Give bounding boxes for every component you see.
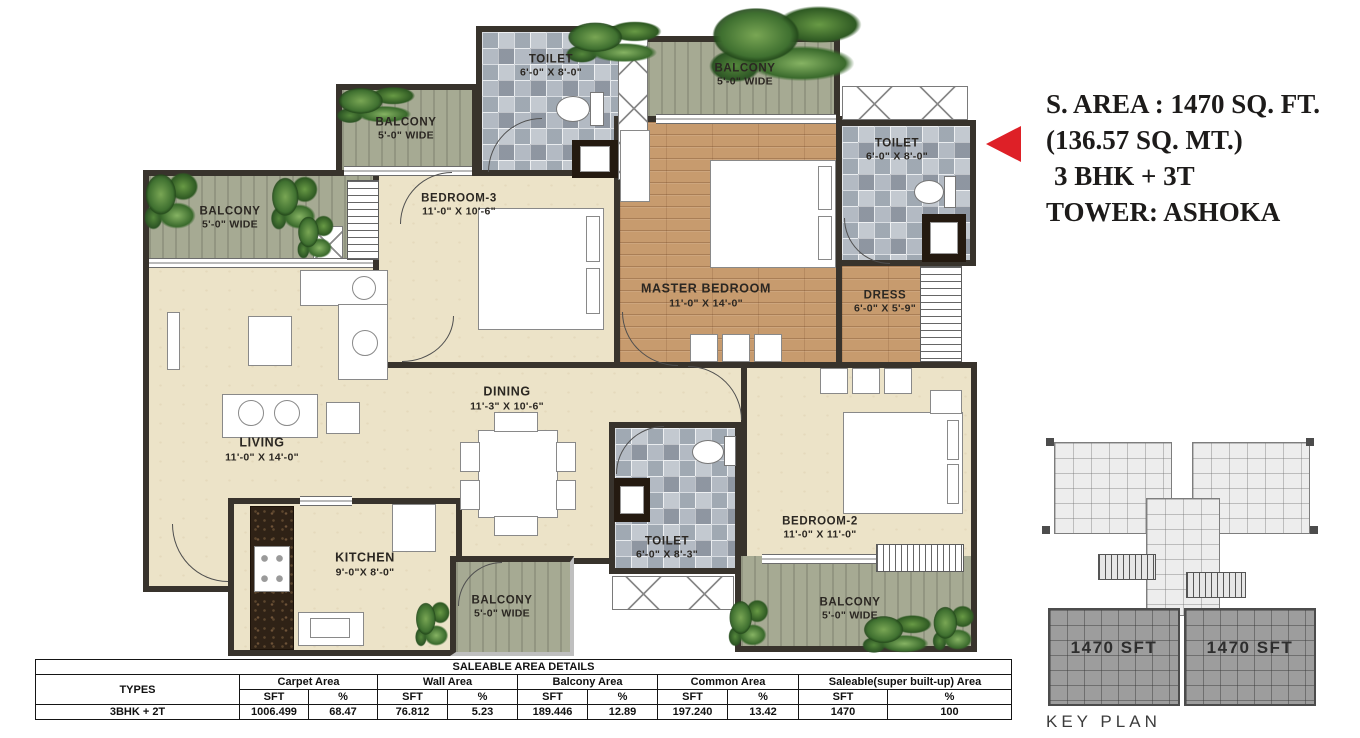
group-header-balcony: Balcony Area (518, 675, 658, 690)
room-dims: 11'-0" X 14'-0" (641, 297, 771, 310)
sub-header-pct: % (888, 690, 1012, 705)
saleable-area-table: SALEABLE AREA DETAILS TYPES Carpet Area … (35, 659, 1012, 720)
cabinet (722, 334, 750, 362)
annotation-unit-type: 3 BHK + 3T (1046, 158, 1320, 194)
cabinet (820, 368, 848, 394)
dining-chair (556, 442, 576, 472)
unit-annotation: S. AREA : 1470 SQ. FT. (136.57 SQ. MT.) … (1046, 86, 1320, 230)
room-dims: 9'-0"X 8'-0" (335, 566, 395, 579)
cabinet (690, 334, 718, 362)
room-name: LIVING (225, 436, 299, 452)
wc-icon (692, 440, 724, 464)
wc-icon (724, 436, 736, 466)
label-bedroom2: BEDROOM-2 11'-0" X 11'-0" (782, 514, 858, 542)
room-dims: 6'-0" X 5'-9" (854, 303, 916, 316)
wc-icon (590, 92, 604, 126)
wc-icon (556, 96, 590, 122)
group-header-wall: Wall Area (378, 675, 518, 690)
value-cell: 5.23 (448, 705, 518, 720)
sub-header-sft: SFT (658, 690, 728, 705)
window-balcony-left (149, 258, 373, 268)
tv-table (248, 316, 292, 366)
sofa-cushion (352, 330, 378, 356)
keyplan-unit-left-highlighted: 1470 SFT (1048, 608, 1180, 706)
room-name: BEDROOM-3 (421, 191, 497, 205)
washbasin-icon (580, 146, 610, 172)
keyplan-column (1042, 526, 1050, 534)
tv-panel (167, 312, 180, 370)
group-header-saleable: Saleable(super built-up) Area (799, 675, 1012, 690)
side-table (326, 402, 360, 434)
label-balcony-kitchen: BALCONY 5'-0" WIDE (471, 593, 532, 621)
room-name: BALCONY (819, 595, 880, 609)
wc-icon (914, 180, 944, 204)
keyplan-column (1306, 438, 1314, 446)
wc-icon (944, 176, 956, 208)
sub-header-sft: SFT (378, 690, 448, 705)
room-dims: 11'-0" X 14'-0" (225, 451, 299, 464)
washbasin-icon (620, 486, 644, 514)
room-dims: 5'-0" WIDE (375, 130, 436, 143)
room-name: MASTER BEDROOM (641, 282, 771, 298)
room-dims: 11'-0" X 11'-0" (782, 529, 858, 542)
pointer-arrow-icon (986, 126, 1021, 162)
plant (930, 602, 978, 654)
annotation-area: S. AREA : 1470 SQ. FT. (1046, 86, 1320, 122)
keyplan-column (1310, 526, 1318, 534)
room-dims: 5'-0" WIDE (714, 76, 775, 89)
keyplan-stair (1098, 554, 1156, 580)
label-master-bedroom: MASTER BEDROOM 11'-0" X 14'-0" (641, 282, 771, 311)
room-dims: 11'-3" X 10'-6" (470, 400, 544, 413)
window-bedroom2-balcony (762, 554, 878, 564)
window-kitchen (300, 496, 352, 506)
value-cell: 76.812 (378, 705, 448, 720)
key-plan: 1470 SFT 1470 SFT KEY PLAN (1042, 438, 1332, 734)
keyplan-unit-left-label: 1470 SFT (1050, 638, 1178, 658)
keyplan-column (1046, 438, 1054, 446)
table-group-header-row: TYPES Carpet Area Wall Area Balcony Area… (36, 675, 1012, 690)
pillow (586, 268, 600, 314)
refrigerator (392, 504, 436, 552)
label-balcony-upper-left: BALCONY 5'-0" WIDE (375, 115, 436, 143)
keyplan-unit-right-label: 1470 SFT (1186, 638, 1314, 658)
label-toilet-top-right: TOILET 6'-0" X 8'-0" (866, 136, 928, 164)
cabinet (754, 334, 782, 362)
pillow (818, 166, 832, 210)
room-name: BALCONY (375, 115, 436, 129)
stove (254, 546, 290, 592)
table-title-row: SALEABLE AREA DETAILS (36, 660, 1012, 675)
dining-chair (460, 442, 480, 472)
label-balcony-bottom: BALCONY 5'-0" WIDE (819, 595, 880, 623)
value-cell: 13.42 (728, 705, 799, 720)
label-balcony-left: BALCONY 5'-0" WIDE (199, 204, 260, 232)
keyplan-stair (1186, 572, 1246, 598)
pillow (586, 216, 600, 262)
label-living: LIVING 11'-0" X 14'-0" (225, 436, 299, 465)
window-balcony-upper-left (344, 166, 472, 176)
sub-header-pct: % (309, 690, 378, 705)
value-cell: 189.446 (518, 705, 588, 720)
annotation-tower: TOWER: ASHOKA (1046, 194, 1320, 230)
label-toilet-top-left: TOILET 6'-0" X 8'-0" (520, 52, 582, 80)
pillow (818, 216, 832, 260)
room-dims: 5'-0" WIDE (471, 608, 532, 621)
washbasin-icon (930, 222, 958, 254)
value-cell: 100 (888, 705, 1012, 720)
railing-bedroom2 (876, 544, 964, 572)
sofa-cushion (274, 400, 300, 426)
corner-unit (930, 390, 962, 414)
window-master-balcony (656, 114, 836, 124)
plant (141, 168, 203, 234)
room-name: TOILET (636, 534, 698, 548)
room-name: BEDROOM-2 (782, 514, 858, 528)
kitchen-sink-bowl (310, 618, 350, 638)
room-name: TOILET (866, 136, 928, 150)
room-dims: 5'-0" WIDE (819, 610, 880, 623)
floor-plan-sheet: TOILET 6'-0" X 8'-0" BALCONY 5'-0" WIDE … (0, 0, 1360, 738)
group-header-common: Common Area (658, 675, 799, 690)
pillow (947, 464, 959, 504)
cabinet (884, 368, 912, 394)
sub-header-pct: % (448, 690, 518, 705)
room-name: DINING (470, 385, 544, 401)
dining-chair (460, 480, 480, 510)
value-cell: 68.47 (309, 705, 378, 720)
room-name: BALCONY (471, 593, 532, 607)
dining-table (478, 430, 558, 518)
value-cell: 1470 (799, 705, 888, 720)
label-bedroom3: BEDROOM-3 11'-0" X 10'-6" (421, 191, 497, 219)
label-balcony-top: BALCONY 5'-0" WIDE (714, 61, 775, 89)
planter-ledge-bottom (612, 576, 734, 610)
keyplan-caption: KEY PLAN (1046, 712, 1161, 732)
room-name: BALCONY (714, 61, 775, 75)
table-title: SALEABLE AREA DETAILS (36, 660, 1012, 675)
room-dims: 5'-0" WIDE (199, 219, 260, 232)
sofa-cushion (238, 400, 264, 426)
wardrobe-bedroom3 (347, 180, 379, 260)
room-dims: 11'-0" X 10'-6" (421, 206, 497, 219)
dining-chair (556, 480, 576, 510)
keyplan-unit-right-highlighted: 1470 SFT (1184, 608, 1316, 706)
annotation-area-metric: (136.57 SQ. MT.) (1046, 122, 1320, 158)
room-name: DRESS (854, 288, 916, 302)
sofa-two-seater (222, 394, 318, 438)
types-header: TYPES (36, 675, 240, 705)
bed-bedroom2 (843, 412, 963, 514)
dining-chair (494, 516, 538, 536)
value-cell: 197.240 (658, 705, 728, 720)
room-name: KITCHEN (335, 551, 395, 567)
sub-header-sft: SFT (518, 690, 588, 705)
plant (295, 212, 337, 262)
value-cell: 12.89 (588, 705, 658, 720)
dining-chair (494, 412, 538, 432)
group-header-carpet: Carpet Area (240, 675, 378, 690)
sub-header-pct: % (588, 690, 658, 705)
sofa-cushion (352, 276, 376, 300)
value-cell: 1006.499 (240, 705, 309, 720)
cabinet (852, 368, 880, 394)
sub-header-sft: SFT (240, 690, 309, 705)
room-dims: 6'-0" X 8'-0" (866, 151, 928, 164)
sub-header-sft: SFT (799, 690, 888, 705)
wardrobe-dress (920, 266, 962, 362)
wardrobe-master (620, 130, 650, 202)
pillow (947, 420, 959, 460)
plant (413, 598, 453, 650)
room-dims: 6'-0" X 8'-0" (520, 67, 582, 80)
planter-ledge-top-right (842, 86, 968, 120)
room-dims: 6'-0" X 8'-3" (636, 549, 698, 562)
label-kitchen: KITCHEN 9'-0"X 8'-0" (335, 551, 395, 580)
room-name: BALCONY (199, 204, 260, 218)
label-toilet-bottom: TOILET 6'-0" X 8'-3" (636, 534, 698, 562)
unit-type-cell: 3BHK + 2T (36, 705, 240, 720)
sub-header-pct: % (728, 690, 799, 705)
table-data-row: 3BHK + 2T 1006.499 68.47 76.812 5.23 189… (36, 705, 1012, 720)
label-dress: DRESS 6'-0" X 5'-9" (854, 288, 916, 316)
keyplan-core (1146, 498, 1220, 616)
label-dining: DINING 11'-3" X 10'-6" (470, 385, 544, 414)
plant (726, 596, 772, 650)
room-name: TOILET (520, 52, 582, 66)
